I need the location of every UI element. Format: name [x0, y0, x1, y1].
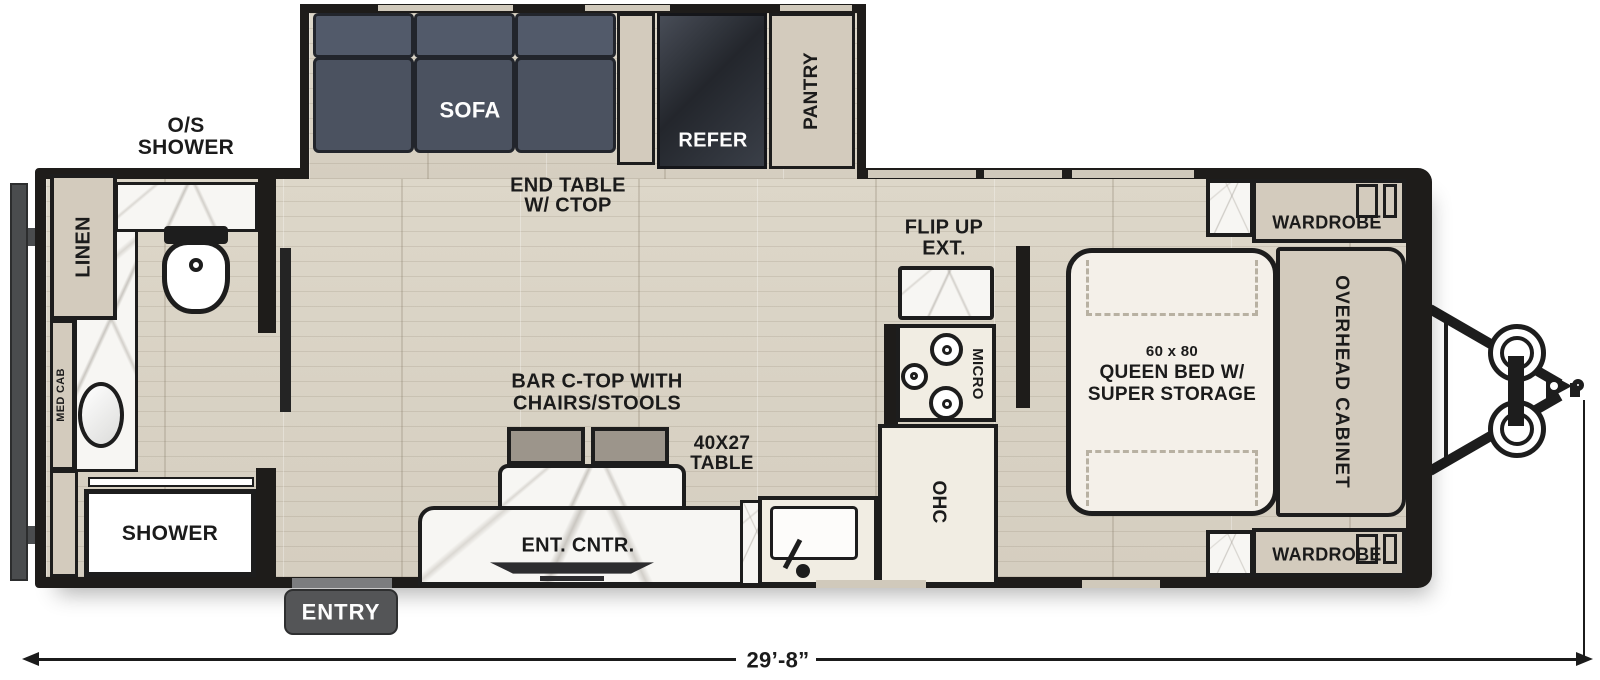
ohc-label: OHC — [928, 480, 948, 523]
window-bottom-1 — [816, 580, 926, 588]
bar-chair-1 — [507, 427, 585, 465]
bar-label-line1: BAR C-TOP WITH — [511, 372, 682, 393]
sofa-back-cushion-1 — [313, 13, 414, 58]
bath-lower-cabinet — [50, 470, 78, 577]
burner-top-ring — [942, 345, 952, 355]
sofa-label: SOFA — [439, 98, 500, 121]
hitch-ball — [1572, 379, 1584, 391]
window-bottom-2 — [1082, 580, 1160, 588]
bar-chair-2 — [591, 427, 669, 465]
toilet-bowl — [162, 240, 230, 314]
nightstand-top — [1206, 179, 1254, 237]
tv-stand — [540, 576, 604, 581]
window-top-1 — [868, 170, 976, 178]
refer-label: REFER — [678, 131, 747, 152]
entry-label: ENTRY — [302, 600, 381, 623]
sofa-seat-cushion-1 — [313, 57, 414, 153]
overhead-cabinet-label: OVERHEAD CABINET — [1331, 275, 1351, 488]
dimension-line-left — [36, 658, 736, 661]
flip-up-label-line1: FLIP UP — [905, 218, 983, 239]
os-shower-label-line1: O/S — [167, 115, 204, 137]
bed-label-line2: SUPER STORAGE — [1088, 385, 1256, 405]
pantry-label: PANTRY — [802, 52, 822, 130]
slideout-window-1 — [378, 5, 513, 11]
hitch-coupler-pin — [1550, 382, 1558, 390]
bar-countertop — [498, 464, 686, 512]
wardrobe-top-label: WARDROBE — [1272, 214, 1381, 233]
dimension-line-right — [816, 658, 1576, 661]
bar-label-line2: CHAIRS/STOOLS — [513, 394, 681, 415]
kitchen-sink — [770, 506, 858, 560]
nightstand-bottom — [1206, 530, 1254, 577]
slideout-window-3 — [780, 5, 852, 11]
bed-storage-head — [1086, 260, 1258, 316]
wardrobe-top-slot-2 — [1383, 184, 1397, 218]
slideout-window-2 — [585, 5, 670, 11]
wardrobe-bottom-slot-2 — [1383, 534, 1397, 564]
end-table-label-line1: END TABLE — [510, 176, 626, 197]
os-shower-label-line2: SHOWER — [138, 137, 234, 159]
bath-counter-top — [115, 182, 258, 232]
table-label-line1: 40X27 — [694, 434, 750, 454]
table-label-line2: TABLE — [690, 454, 753, 474]
wardrobe-bottom-label: WARDROBE — [1272, 546, 1381, 565]
shower-door — [88, 477, 254, 487]
kitchen-wall — [1016, 246, 1030, 408]
entry-threshold — [292, 578, 392, 588]
hitch-jack-bar — [1444, 318, 1448, 464]
sofa-seat-cushion-3 — [515, 57, 616, 153]
bed-storage-foot — [1086, 450, 1258, 506]
shower-wall — [256, 468, 276, 577]
toilet-flush-button — [189, 258, 203, 272]
dimension-reference-line — [1583, 400, 1585, 660]
faucet-knob — [796, 564, 810, 578]
dimension-label: 29’-8” — [747, 648, 810, 671]
bathroom-sink — [78, 382, 124, 448]
window-top-2 — [984, 170, 1062, 178]
flip-up-label-line2: EXT. — [922, 239, 965, 260]
bed-size-label: 60 x 80 — [1146, 344, 1198, 360]
sofa-back-cushion-2 — [414, 13, 515, 58]
burner-left-ring — [910, 372, 918, 380]
end-table-label-line2: W/ CTOP — [524, 196, 611, 217]
window-top-3 — [1072, 170, 1194, 178]
bathroom-wall — [258, 179, 276, 333]
sofa-back-cushion-3 — [515, 13, 616, 58]
end-table — [617, 13, 655, 165]
linen-label: LINEN — [74, 216, 95, 278]
propane-tank-strap — [1508, 356, 1524, 426]
pocket-door — [280, 248, 291, 412]
floorplan-canvas: 29’-8” SOFA REFER PANTRY O/S SHOWER LINE… — [0, 0, 1600, 680]
flip-up-extension — [898, 266, 994, 320]
burner-bottom-ring — [942, 399, 952, 409]
ent-cntr-label: ENT. CNTR. — [522, 536, 635, 557]
micro-label: MICRO — [969, 348, 985, 400]
bed-label-line1: QUEEN BED W/ — [1099, 363, 1244, 383]
shower-label: SHOWER — [122, 523, 218, 545]
med-cab-label: MED CAB — [56, 368, 68, 421]
rear-bumper — [10, 183, 28, 581]
